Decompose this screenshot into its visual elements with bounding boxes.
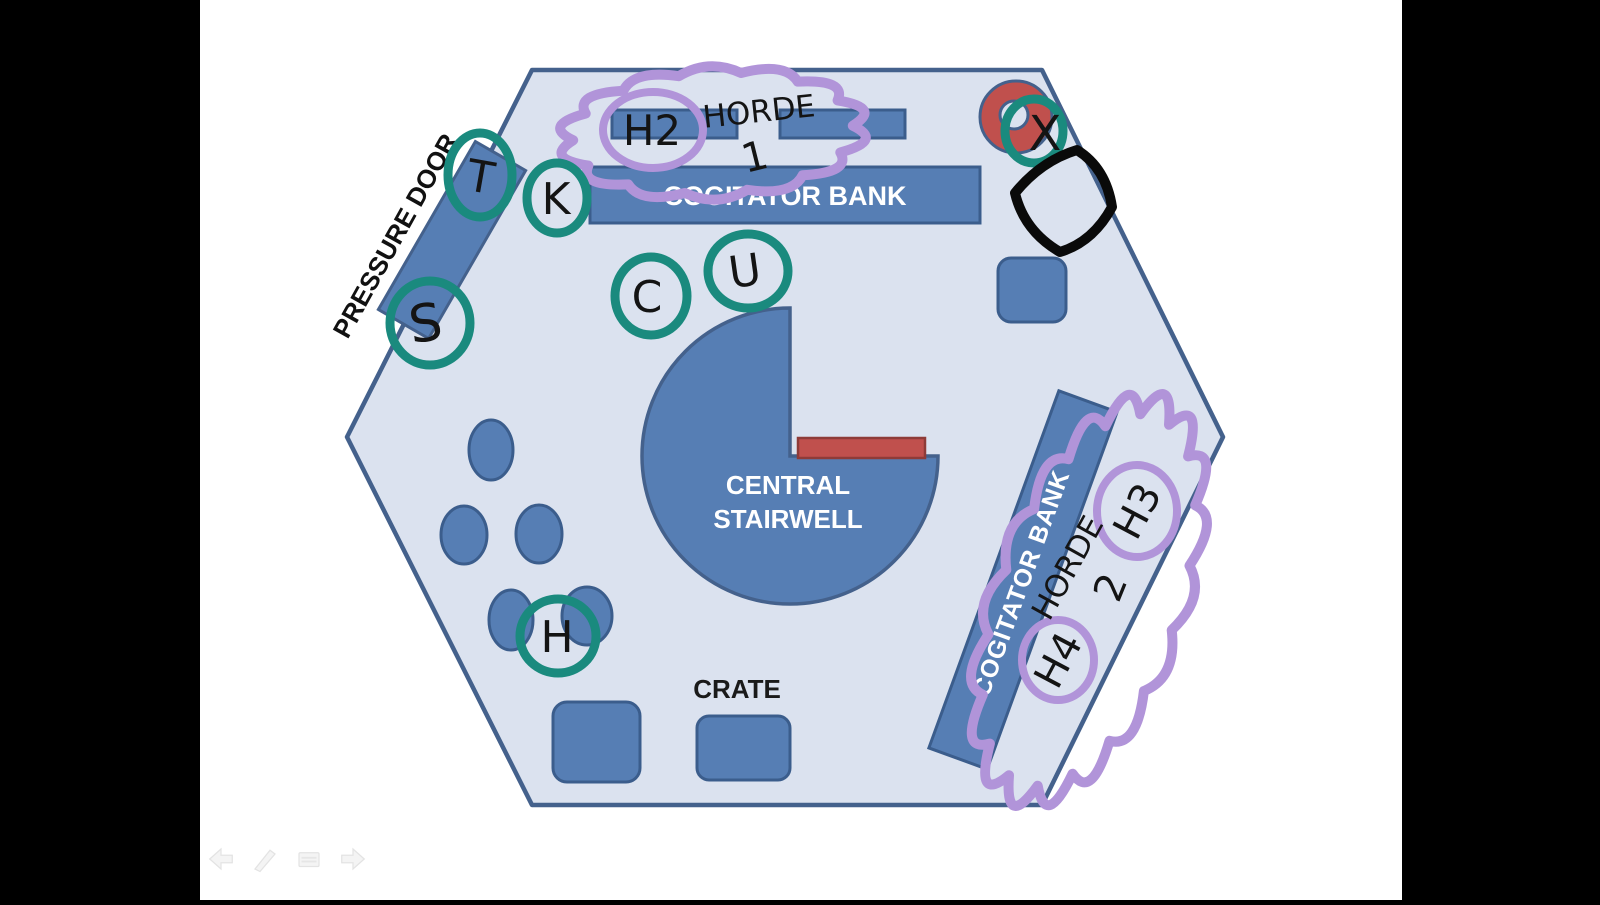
token-c-label: C: [632, 272, 663, 323]
pen-icon: [250, 844, 280, 874]
previous-arrow-icon: [206, 844, 236, 874]
next-arrow-icon: [338, 844, 368, 874]
stair-railing-red: [798, 438, 925, 458]
crate-label: CRATE: [693, 674, 781, 704]
presentation-screen: { "map": { "central_stairwell": { "line1…: [0, 0, 1600, 900]
letterbox-right: [1402, 0, 1600, 900]
token-k-label: K: [542, 174, 572, 225]
drum-2: [441, 506, 487, 564]
slide-menu-icon: [294, 844, 324, 874]
drum-1: [469, 420, 513, 480]
crate-right: [697, 716, 790, 780]
console-block: [998, 258, 1066, 322]
pen-tool-button[interactable]: [250, 844, 280, 874]
slide-menu-button[interactable]: [294, 844, 324, 874]
deck-map: COGITATOR BANK CENTRAL STAIRWELL COGITAT…: [200, 0, 1402, 900]
token-h-label: H: [540, 612, 573, 663]
letterbox-left: [0, 0, 200, 900]
central-stairwell-label-line2: STAIRWELL: [713, 504, 862, 534]
crate-left: [553, 702, 640, 782]
next-slide-button[interactable]: [338, 844, 368, 874]
presenter-toolbar: [206, 844, 368, 874]
slide-canvas: COGITATOR BANK CENTRAL STAIRWELL COGITAT…: [200, 0, 1402, 900]
previous-slide-button[interactable]: [206, 844, 236, 874]
token-h2-label: H2: [623, 106, 681, 155]
drum-3: [516, 505, 562, 563]
central-stairwell-label-line1: CENTRAL: [726, 470, 850, 500]
